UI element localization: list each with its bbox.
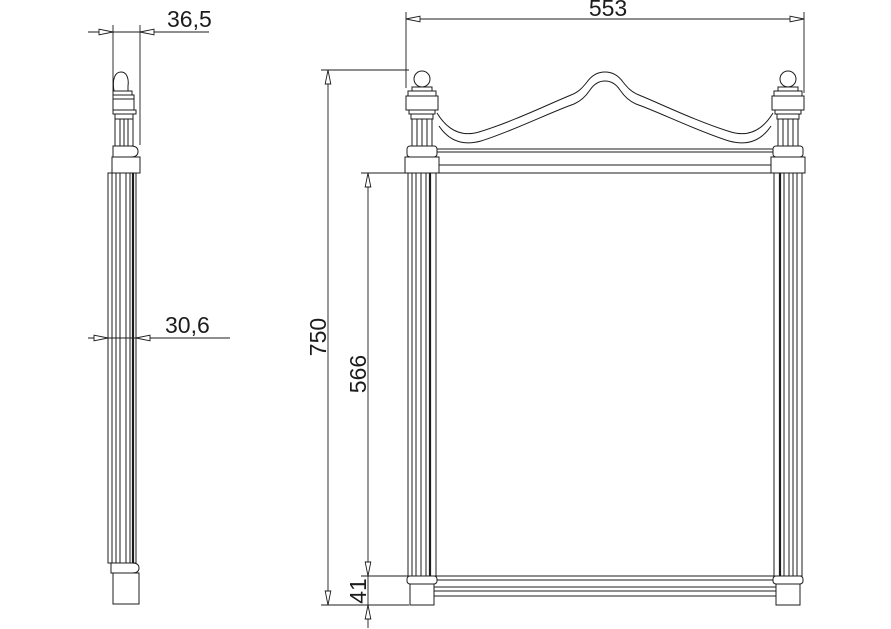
dim-label-front-base-height: 41: [345, 578, 371, 604]
dim-label-front-total-height: 750: [305, 318, 331, 356]
dim-label-front-mirror-height: 566: [345, 355, 371, 393]
side-finial-disc: [113, 91, 132, 95]
side-capital-molding: [113, 95, 134, 99]
dim-label-side-top-depth: 36,5: [167, 6, 212, 32]
arrow-up-icon: [365, 173, 371, 187]
drawing-svg: 36,5 30,6 553 750 566 41: [0, 0, 891, 629]
dim-front-total-height: 750: [305, 70, 409, 605]
arrow-up-icon: [325, 70, 331, 84]
right-capital-step: [775, 110, 801, 114]
right-finial-ball: [780, 71, 796, 87]
left-finial-ball: [414, 71, 430, 87]
dim-label-front-width: 553: [589, 0, 627, 21]
right-capital-block: [772, 96, 804, 110]
right-column: [771, 71, 805, 605]
right-foot-collar: [773, 576, 803, 584]
dim-side-top-depth: 36,5: [88, 6, 212, 145]
arrow-right-icon: [94, 335, 108, 341]
arrow-right-icon: [99, 29, 113, 35]
left-capital-step: [409, 110, 435, 114]
right-rail-block: [771, 157, 805, 173]
dim-front-base-height: 41: [345, 576, 371, 628]
front-view: [405, 71, 805, 605]
side-rail-block: [112, 157, 140, 173]
arrow-right-icon: [790, 16, 804, 22]
technical-drawing: 36,5 30,6 553 750 566 41: [0, 0, 891, 629]
arrow-left-icon: [406, 16, 420, 22]
left-capital-molding: [408, 91, 436, 96]
bottom-rail: [434, 576, 776, 596]
arrow-down-icon: [325, 591, 331, 605]
arrow-up-icon: [365, 605, 371, 619]
arrow-left-icon: [136, 335, 150, 341]
left-capital-block: [406, 96, 438, 110]
arrow-left-icon: [140, 29, 154, 35]
right-finial-disc: [778, 87, 798, 91]
left-neck-molding: [411, 114, 433, 119]
left-foot-block: [410, 584, 434, 605]
side-foot-collar: [111, 563, 139, 573]
right-capital-molding: [774, 91, 802, 96]
left-collar: [407, 146, 437, 157]
right-foot-block: [776, 584, 800, 605]
left-foot-collar: [407, 576, 437, 584]
arrow-down-icon: [365, 562, 371, 576]
side-finial-ball: [113, 72, 128, 91]
dim-front-width: 553: [406, 0, 804, 93]
side-collar: [113, 146, 138, 157]
dim-label-side-frame-depth: 30,6: [165, 312, 210, 338]
left-column: [405, 71, 439, 605]
right-stile: [774, 173, 802, 576]
side-foot-block: [113, 573, 139, 604]
crown-pediment-inner: [439, 81, 771, 143]
right-collar: [773, 146, 803, 157]
side-capital-step: [113, 110, 136, 114]
left-finial-disc: [412, 87, 432, 91]
side-neck-molding: [115, 114, 133, 119]
dim-ext-lines: [321, 70, 409, 605]
left-rail-block: [405, 157, 439, 173]
crown-rail-band: [436, 149, 774, 173]
right-neck-molding: [777, 114, 799, 119]
side-capital-block: [113, 99, 134, 110]
